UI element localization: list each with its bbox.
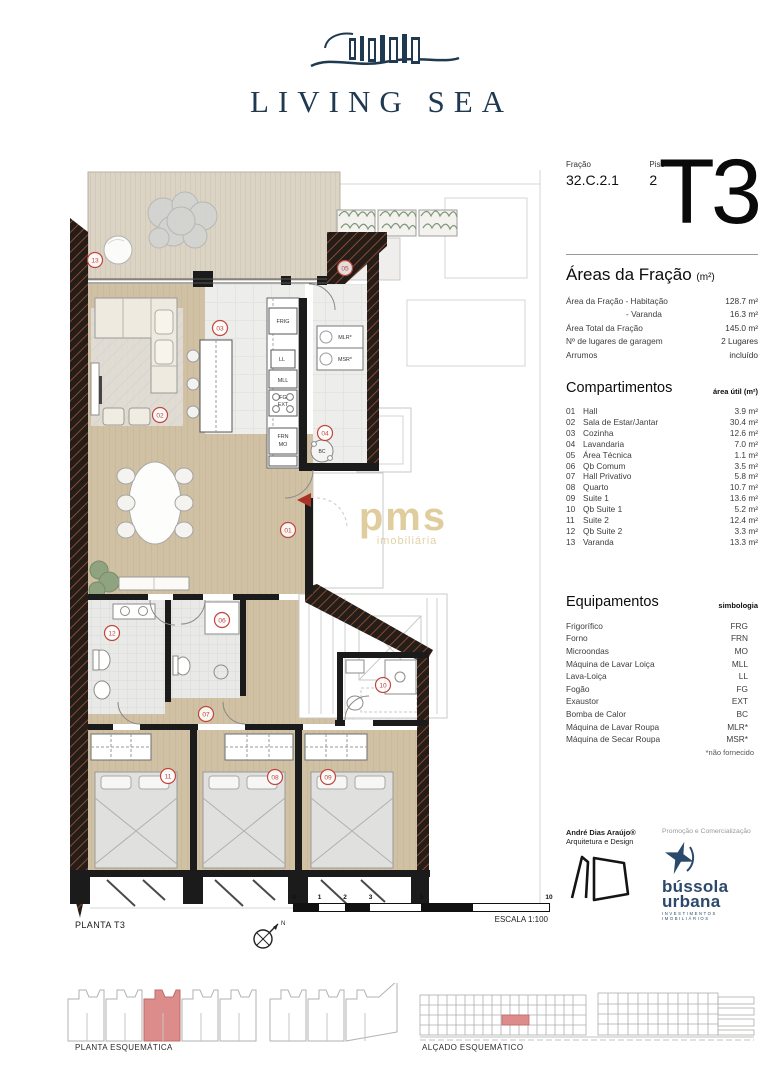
svg-text:FRN: FRN [277, 434, 288, 440]
svg-text:FRIG: FRIG [277, 319, 290, 325]
svg-text:MLL: MLL [278, 378, 289, 384]
area-row: - Varanda16.3 m² [566, 308, 758, 321]
scale-caption: ESCALA 1:100 [448, 915, 548, 924]
compartimento-row: 13Varanda13.3 m² [566, 537, 758, 548]
equipamento-row: Máquina de Secar RoupaMSR* [566, 733, 758, 746]
info-panel: Fração 32.C.2.1 Piso 2 T3 Áreas da Fraçã… [566, 160, 758, 757]
architect-logo-icon [566, 850, 644, 902]
svg-text:08: 08 [271, 774, 279, 781]
equipamentos-title: Equipamentos simbologia [566, 594, 758, 610]
compartimento-row: 03Cozinha12.6 m² [566, 428, 758, 439]
svg-text:13: 13 [91, 257, 99, 264]
areas-title: Áreas da Fração (m²) [566, 265, 758, 285]
compartimento-row: 05Área Técnica1.1 m² [566, 450, 758, 461]
compartimentos-table: 01Hall3.9 m²02Sala de Estar/Jantar30.4 m… [566, 406, 758, 548]
plan-sheet: LIVING SEA Fração 32.C.2.1 Piso 2 T3 Áre… [0, 0, 763, 1080]
simbologia-col-header: simbologia [718, 601, 758, 610]
brand-block: LIVING SEA [0, 28, 763, 120]
equipamento-row: Lava-LoiçaLL [566, 670, 758, 683]
compartimento-row: 10Qb Suite 15.2 m² [566, 504, 758, 515]
heat-pump: BC [311, 440, 333, 462]
area-row: Área Total da Fração145.0 m² [566, 322, 758, 335]
compartimento-row: 11Suite 212.4 m² [566, 515, 758, 526]
architect-subtitle: Arquitetura e Design [566, 837, 658, 846]
area-row: Nº de lugares de garagem2 Lugares [566, 335, 758, 348]
equipamentos-table: FrigoríficoFRGFornoFRNMicroondasMOMáquin… [566, 620, 758, 746]
svg-text:12: 12 [108, 630, 116, 637]
svg-text:05: 05 [341, 265, 349, 272]
compartimento-row: 02Sala de Estar/Jantar30.4 m² [566, 417, 758, 428]
compartimento-row: 04Lavandaria7.0 m² [566, 439, 758, 450]
equipamentos-footnote: *não fornecido [566, 748, 758, 757]
equipamento-row: ExaustorEXT [566, 695, 758, 708]
equipamento-row: FrigoríficoFRG [566, 620, 758, 633]
equipamento-row: Máquina de Lavar RoupaMLR* [566, 721, 758, 734]
area-util-col-header: área útil (m²) [713, 387, 758, 396]
svg-text:MO: MO [279, 442, 288, 448]
svg-text:02: 02 [156, 412, 164, 419]
beds [95, 772, 393, 868]
svg-text:06: 06 [218, 617, 226, 624]
svg-text:FG: FG [279, 395, 287, 401]
equipamento-row: Máquina de Lavar LoiçaMLL [566, 658, 758, 671]
svg-text:03: 03 [216, 325, 224, 332]
areas-table: Área da Fração - Habitação128.7 m²- Vara… [566, 295, 758, 362]
compartimento-row: 12Qb Suite 23.3 m² [566, 526, 758, 537]
svg-text:MLR*: MLR* [338, 335, 352, 341]
fracao-label: Fração [566, 160, 619, 169]
bedrooms [91, 734, 393, 868]
compartimento-row: 09Suite 113.6 m² [566, 493, 758, 504]
equipamento-row: MicroondasMO [566, 645, 758, 658]
boat-logo-icon [297, 28, 467, 80]
svg-text:09: 09 [324, 774, 332, 781]
schematic-elevation [418, 983, 758, 1045]
schematic-plan-caption: PLANTA ESQUEMÁTICA [75, 1043, 173, 1052]
equipamento-row: FornoFRN [566, 632, 758, 645]
scale-bar: 0 1 2 3 5 10 [293, 903, 550, 912]
svg-text:BC: BC [319, 449, 326, 455]
floor-plan: pms imobiliária [55, 158, 555, 938]
svg-text:11: 11 [165, 773, 172, 780]
schematic-elevation-caption: ALÇADO ESQUEMÁTICO [422, 1043, 523, 1052]
equipamento-row: FogãoFG [566, 683, 758, 696]
north-compass-icon: N [245, 915, 289, 959]
architect-block: André Dias Araújo® Arquitetura e Design [566, 828, 658, 907]
svg-text:01: 01 [284, 527, 292, 534]
svg-text:LL: LL [279, 357, 285, 363]
promo-label: Promoção e Comercialização [662, 828, 763, 835]
svg-text:10: 10 [379, 682, 387, 689]
brand-name: LIVING SEA [250, 84, 513, 119]
typology-badge: T3 [659, 154, 758, 230]
terrace-table [104, 236, 132, 264]
svg-text:EXT: EXT [278, 402, 289, 408]
fracao-value: 32.C.2.1 [566, 172, 619, 188]
bussola-logo: bússola urbana INVESTIMENTOS IMOBILIÁRIO… [662, 839, 763, 921]
svg-text:N: N [281, 921, 285, 927]
promo-name-2: urbana [662, 894, 763, 909]
terrace [88, 172, 457, 280]
compartimentos-title: Compartimentos área útil (m²) [566, 380, 758, 396]
equipamento-row: Bomba de CalorBC [566, 708, 758, 721]
schematic-plan [66, 983, 401, 1045]
svg-text:pms: pms [359, 495, 447, 539]
unit-id-block: Fração 32.C.2.1 Piso 2 T3 [566, 160, 758, 252]
area-row: Área da Fração - Habitação128.7 m² [566, 295, 758, 308]
compartimento-row: 07Hall Privativo5.8 m² [566, 471, 758, 482]
compartimento-row: 01Hall3.9 m² [566, 406, 758, 417]
plan-caption: PLANTA T3 [75, 920, 125, 930]
compartimento-row: 08Quarto10.7 m² [566, 482, 758, 493]
svg-text:07: 07 [202, 711, 210, 718]
svg-text:MSR*: MSR* [338, 357, 353, 363]
area-row: Arrumosincluído [566, 349, 758, 362]
promo-block: Promoção e Comercialização bússola urban… [662, 828, 763, 921]
architect-name: André Dias Araújo® [566, 828, 658, 837]
fracao-block: Fração 32.C.2.1 [566, 160, 619, 188]
svg-text:04: 04 [321, 430, 329, 437]
panel-divider [566, 254, 758, 255]
compass-star-icon [662, 839, 696, 879]
compartimento-row: 06Qb Comum3.5 m² [566, 461, 758, 472]
promo-subtitle: INVESTIMENTOS IMOBILIÁRIOS [662, 911, 763, 921]
svg-text:imobiliária: imobiliária [377, 535, 438, 547]
